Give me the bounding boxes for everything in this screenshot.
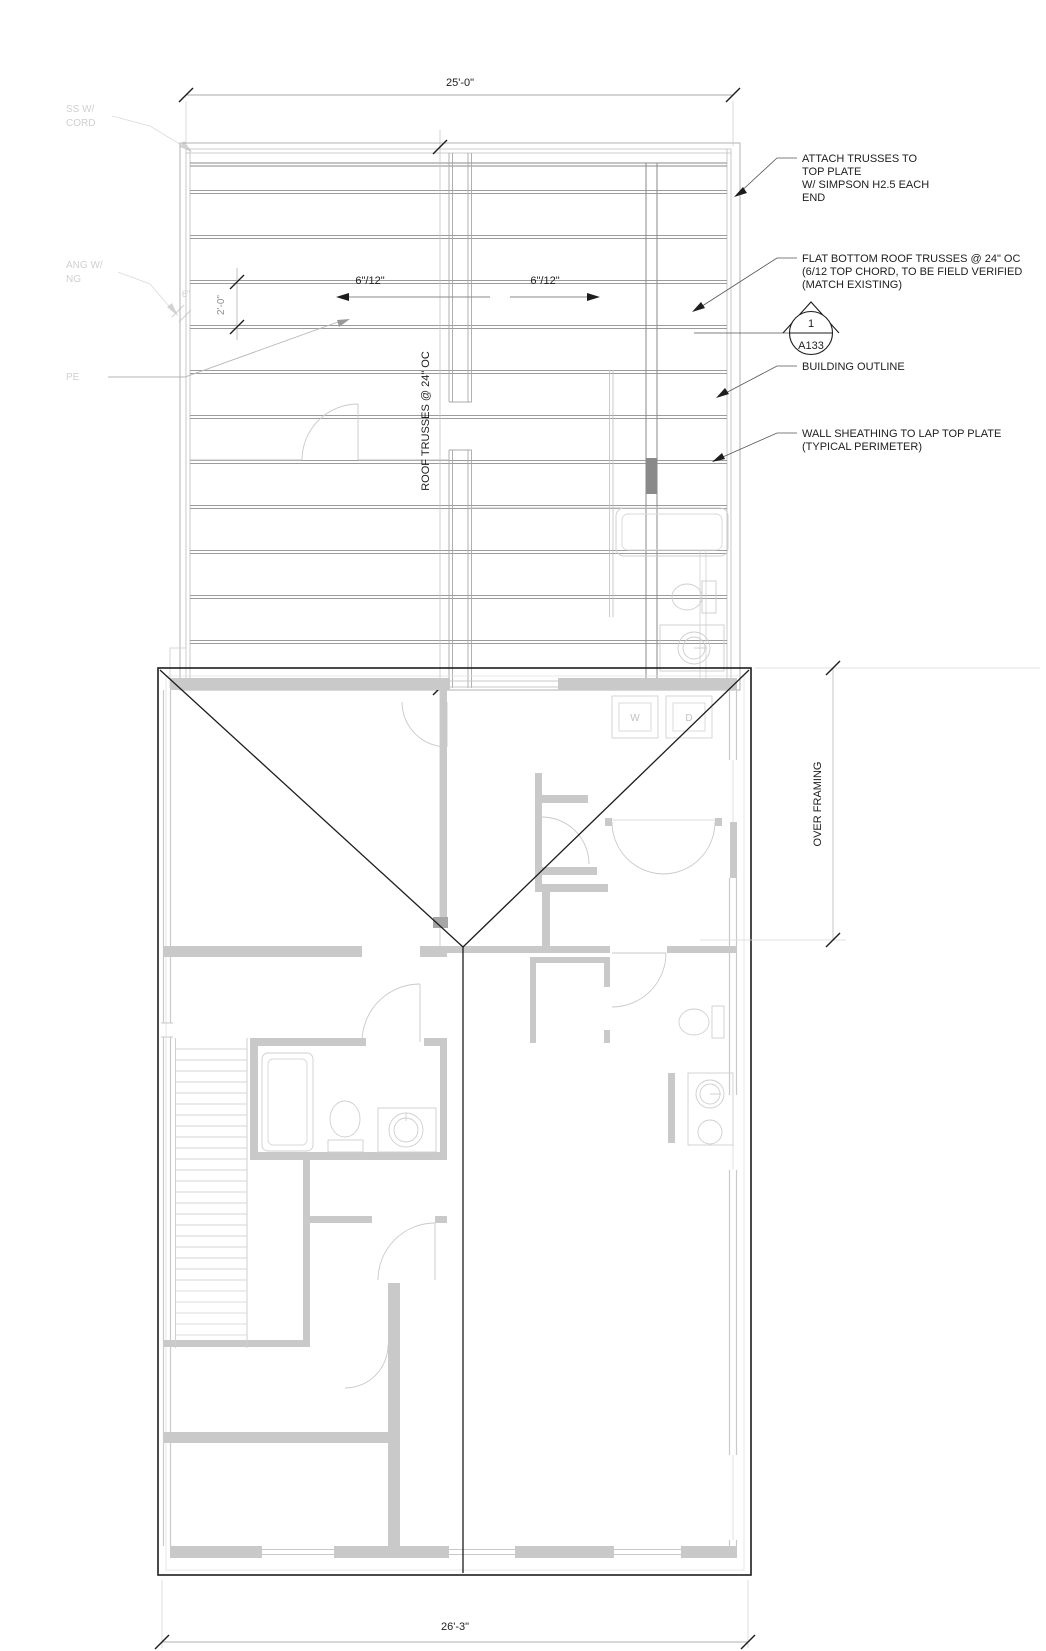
slope-right-text: 6"/12": [530, 275, 559, 287]
svg-text:FLAT BOTTOM ROOF TRUSSES @ 24": FLAT BOTTOM ROOF TRUSSES @ 24" OC: [802, 253, 1020, 265]
stair: [176, 1038, 248, 1348]
faded-note-line: NG: [66, 274, 81, 285]
faded-note-line: PE: [66, 372, 80, 383]
double-door-arc: [663, 822, 715, 874]
left-bath-fixtures: [262, 1053, 436, 1152]
truss-spacing-dimension: 2'-0": [216, 268, 244, 340]
svg-text:(6/12 TOP CHORD, TO BE FIELD V: (6/12 TOP CHORD, TO BE FIELD VERIFIED: [802, 266, 1022, 278]
bathtub: [616, 508, 728, 556]
svg-text:(MATCH EXISTING): (MATCH EXISTING): [802, 279, 902, 291]
leader-arrow-icon: [692, 302, 705, 312]
callout-sheet-number: A133: [798, 340, 824, 352]
toilet-tank: [702, 581, 716, 613]
truss-spacing-text: 2'-0": [216, 295, 227, 315]
note-attach-trusses: ATTACH TRUSSES TO TOP PLATE W/ SIMPSON H…: [734, 153, 929, 204]
lower-floor-plan: W D: [161, 676, 744, 1570]
svg-text:W/ SIMPSON H2.5 EACH: W/ SIMPSON H2.5 EACH: [802, 179, 929, 191]
roof-framing-plan-sheet: 25'-0" SS W/ CORD ANG W/ NG PE 6": [0, 0, 1046, 1651]
toilet: [672, 584, 702, 610]
svg-text:END: END: [802, 192, 825, 204]
door-swing-arc: [362, 984, 420, 1042]
note-building-outline: BUILDING OUTLINE: [716, 361, 905, 398]
faded-note-line: SS W/: [66, 104, 95, 115]
sink-counter: [378, 1108, 436, 1152]
faded-note-line: CORD: [66, 118, 95, 129]
over-framing-label: OVER FRAMING: [812, 762, 824, 847]
building-outline-existing: [180, 143, 740, 690]
slope-left-arrow-icon: [336, 293, 349, 301]
top-dimension: 25'-0": [179, 77, 740, 146]
valley-line-right: [463, 670, 749, 947]
dryer-label: D: [685, 713, 692, 724]
toilet-tank: [712, 1006, 724, 1038]
door-swing-arc: [345, 1345, 388, 1388]
toilet: [679, 1009, 709, 1035]
existing-bath-fixtures: [616, 508, 728, 671]
right-bath-fixtures: [679, 1006, 733, 1145]
annotations: ATTACH TRUSSES TO TOP PLATE W/ SIMPSON H…: [692, 153, 1022, 462]
svg-text:WALL SHEATHING TO LAP TOP PLAT: WALL SHEATHING TO LAP TOP PLATE: [802, 428, 1001, 440]
door-swing-arc: [612, 953, 666, 1007]
washer-label: W: [630, 713, 640, 724]
interior-walls: [163, 690, 737, 1546]
double-door-arc: [612, 822, 664, 874]
svg-text:BUILDING OUTLINE: BUILDING OUTLINE: [802, 361, 905, 373]
laundry-closet: W D: [612, 696, 712, 738]
callout-detail-number: 1: [808, 318, 814, 330]
toilet-tank: [328, 1140, 363, 1152]
existing-interior-walls: [170, 153, 706, 688]
slope-right-arrow-icon: [587, 293, 600, 301]
faded-leader-arrow: [167, 303, 178, 316]
svg-text:TOP PLATE: TOP PLATE: [802, 166, 861, 178]
slope-left-text: 6"/12": [355, 275, 384, 287]
bathtub: [262, 1053, 313, 1151]
faded-note-line: ANG W/: [66, 260, 103, 271]
svg-text:(TYPICAL PERIMETER): (TYPICAL PERIMETER): [802, 441, 922, 453]
note-wall-sheathing: WALL SHEATHING TO LAP TOP PLATE (TYPICAL…: [712, 428, 1001, 462]
bottom-dimension-text: 26'-3": [441, 1621, 469, 1633]
door-swing-arc: [542, 817, 589, 864]
truss-plan-existing-building: 2'-0" 6"/12" 6"/12" ROOF TRUSSES @ 24" O…: [108, 130, 740, 950]
plan-drawing: 25'-0" SS W/ CORD ANG W/ NG PE 6": [0, 0, 1046, 1651]
top-dimension-text: 25'-0": [446, 77, 474, 89]
faded-partial-notes: SS W/ CORD ANG W/ NG PE 6": [66, 104, 192, 383]
toilet: [330, 1101, 360, 1137]
doors: [345, 702, 715, 1388]
svg-text:ATTACH TRUSSES TO: ATTACH TRUSSES TO: [802, 153, 918, 165]
valley-line-left: [160, 670, 463, 947]
note-flat-bottom-trusses: FLAT BOTTOM ROOF TRUSSES @ 24" OC (6/12 …: [692, 253, 1022, 312]
roof-trusses-label: ROOF TRUSSES @ 24" OC: [420, 351, 432, 491]
bottom-windows: [262, 1546, 681, 1558]
door-swing-arc: [302, 404, 358, 460]
bottom-dimension: 26'-3": [155, 1580, 755, 1649]
door-swing-arc: [378, 1223, 435, 1280]
